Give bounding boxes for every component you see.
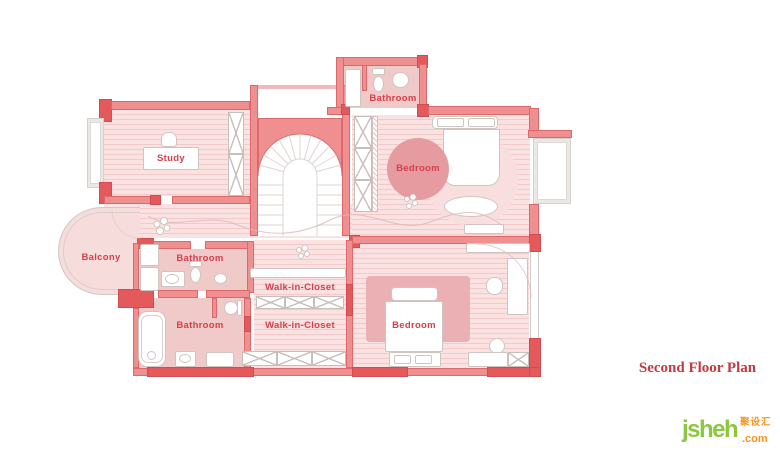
closet-shelf xyxy=(285,296,314,309)
study-label: Study xyxy=(157,154,185,164)
drawer-cell xyxy=(415,355,432,364)
pillow xyxy=(437,118,464,127)
toilet-bowl xyxy=(190,267,201,283)
logo-tld-text: .com xyxy=(742,434,768,445)
desk-chair xyxy=(486,277,503,295)
study-window-glass xyxy=(90,122,101,184)
study-desk: Study xyxy=(143,147,199,170)
wall-divider xyxy=(212,298,217,318)
study-chair xyxy=(161,132,177,147)
cabinet xyxy=(468,352,508,367)
bedroom-low-label: Bedroom xyxy=(386,321,442,331)
wardrobe xyxy=(354,116,372,148)
site-logo: jsheh 聚设汇 .com xyxy=(682,412,780,450)
study-wardrobe xyxy=(228,154,244,196)
wall-segment xyxy=(158,290,198,298)
oval-rug xyxy=(444,196,498,217)
dryer xyxy=(140,267,159,291)
wardrobe xyxy=(354,180,372,212)
bed-headboard xyxy=(391,287,438,301)
toilet-tank xyxy=(237,300,242,316)
wall-segment xyxy=(247,241,254,293)
balcony-inner-line xyxy=(63,212,140,290)
bathtub-drain xyxy=(147,351,156,360)
sink xyxy=(392,72,409,88)
desk xyxy=(507,258,528,315)
closet-shelf xyxy=(314,296,344,309)
wall-corner xyxy=(346,284,353,316)
toilet-bowl xyxy=(373,76,384,92)
closet-lower-label: Walk-in-Closet xyxy=(254,321,346,331)
wall-corner xyxy=(529,234,541,252)
closet-shelf xyxy=(277,351,312,366)
shelf xyxy=(466,243,530,253)
sink xyxy=(165,274,179,284)
toilet-tank xyxy=(372,68,385,75)
bathroom-mid-label: Bathroom xyxy=(150,254,250,264)
wall-segment xyxy=(111,101,250,110)
bedroom-low-window xyxy=(530,252,539,338)
wall-segment xyxy=(172,196,250,204)
bathroom-top-label: Bathroom xyxy=(352,94,434,104)
bedroom-top-label: Bedroom xyxy=(387,164,449,174)
balcony-right-inner xyxy=(537,142,567,200)
study-wardrobe xyxy=(228,112,244,154)
balcony-label: Balcony xyxy=(64,253,138,263)
floor-plan-canvas: Study xyxy=(0,0,780,450)
plan-title: Second Floor Plan xyxy=(615,360,780,377)
counter xyxy=(206,352,234,367)
bench xyxy=(464,224,504,234)
sink-small xyxy=(214,273,227,284)
wall-segment xyxy=(529,204,539,238)
wardrobe xyxy=(354,148,372,180)
wall-corner xyxy=(150,195,161,205)
closet-shelf xyxy=(312,351,346,366)
wall-segment xyxy=(206,290,250,298)
wall-corner xyxy=(529,338,541,368)
wall-corner xyxy=(118,289,154,308)
wall-corner xyxy=(147,367,254,377)
closet-shelf xyxy=(256,296,285,309)
wall-segment xyxy=(428,106,531,115)
closet-upper-label: Walk-in-Closet xyxy=(254,283,346,293)
pillow xyxy=(468,118,495,127)
stair-wall-left xyxy=(250,85,258,236)
wall-segment xyxy=(336,57,425,66)
wall-segment xyxy=(205,241,250,249)
wall-segment xyxy=(528,130,572,138)
wall-divider xyxy=(362,65,367,91)
sink xyxy=(179,354,191,363)
closet-shelf xyxy=(242,351,277,366)
wall-corner xyxy=(352,367,408,377)
cabinet-x xyxy=(508,352,529,367)
bathroom-low-label: Bathroom xyxy=(150,321,250,331)
wall-segment xyxy=(133,243,139,292)
wardrobe-hatch xyxy=(372,116,378,212)
bed xyxy=(443,129,500,186)
logo-cn-text: 聚设汇 xyxy=(740,418,772,428)
logo-brand-text: jsheh xyxy=(682,418,737,442)
toilet-bowl xyxy=(224,301,238,315)
closet-rail xyxy=(250,268,346,278)
wall-segment xyxy=(336,57,344,110)
drawer-cell xyxy=(394,355,411,364)
